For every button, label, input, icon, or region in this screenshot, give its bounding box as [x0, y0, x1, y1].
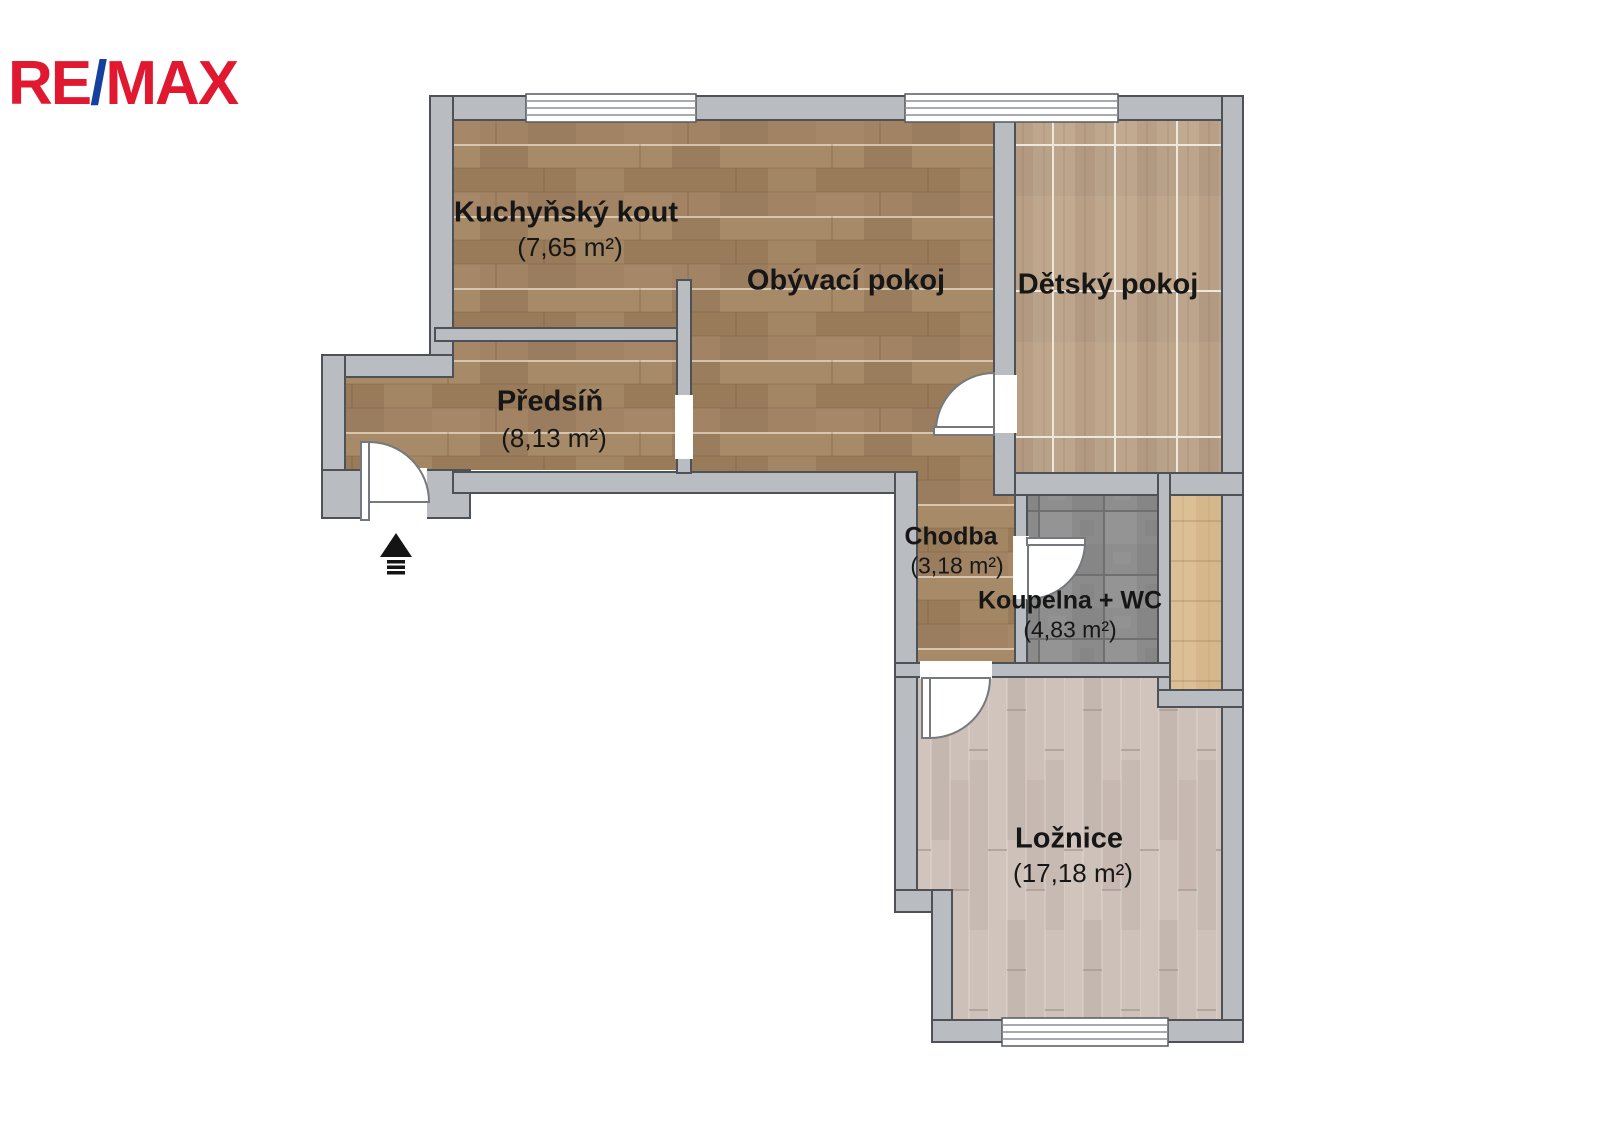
- door-leaf-bedroom: [922, 678, 930, 738]
- room-area-corridor: (3,18 m²): [910, 555, 1003, 578]
- window-top-left: [526, 94, 696, 122]
- wall-living-children: [994, 120, 1015, 495]
- room-area-bathroom: (4,83 m²): [1023, 619, 1116, 642]
- room-label-living: Obývací pokoj: [747, 267, 945, 296]
- door-leaf-bathroom: [1027, 538, 1085, 545]
- floor-bedroom: [952, 890, 1158, 1020]
- door-opening-children: [992, 375, 1017, 433]
- remax-logo: RE/MAX: [8, 48, 237, 119]
- wall-right: [1222, 96, 1243, 1042]
- wall-kitchen-hall: [435, 328, 677, 341]
- remax-logo-re: RE: [8, 49, 90, 118]
- wall-bottom-middle: [453, 472, 917, 493]
- room-label-corridor: Chodba: [904, 525, 997, 550]
- door-leaf-entrance: [361, 442, 369, 520]
- floor-plan-drawing: [0, 0, 1600, 1131]
- room-area-bedroom: (17,18 m²): [1013, 860, 1133, 886]
- floor-kitchen-living-connector: [677, 120, 691, 280]
- room-area-kitchen: (7,65 m²): [517, 234, 622, 260]
- floor-bedroom: [1158, 707, 1222, 1020]
- window-bottom: [1002, 1018, 1168, 1046]
- door-opening-hall-living: [675, 395, 693, 459]
- entrance-arrow-icon: [380, 533, 412, 575]
- room-area-hall: (8,13 m²): [501, 425, 606, 451]
- wall-strip-bottom: [1158, 690, 1243, 707]
- door-opening-bedroom: [920, 661, 992, 679]
- wall-bathroom-right: [1158, 473, 1170, 690]
- room-label-hall: Předsíň: [497, 388, 603, 417]
- door-leaf-children: [934, 427, 994, 435]
- remax-logo-slash: /: [90, 49, 105, 118]
- wall-below-children: [1015, 473, 1243, 495]
- window-top-right: [905, 94, 1118, 122]
- room-label-children: Dětský pokoj: [1018, 271, 1199, 300]
- remax-logo-max: MAX: [105, 49, 237, 118]
- floor-closet-strip: [1170, 495, 1222, 690]
- room-label-bedroom: Ložnice: [1015, 825, 1123, 854]
- room-label-kitchen: Kuchyňský kout: [454, 199, 678, 228]
- room-label-bathroom: Koupelna + WC: [978, 589, 1162, 614]
- floor-plan: Kuchyňský kout (7,65 m²) Obývací pokoj D…: [0, 0, 1600, 1131]
